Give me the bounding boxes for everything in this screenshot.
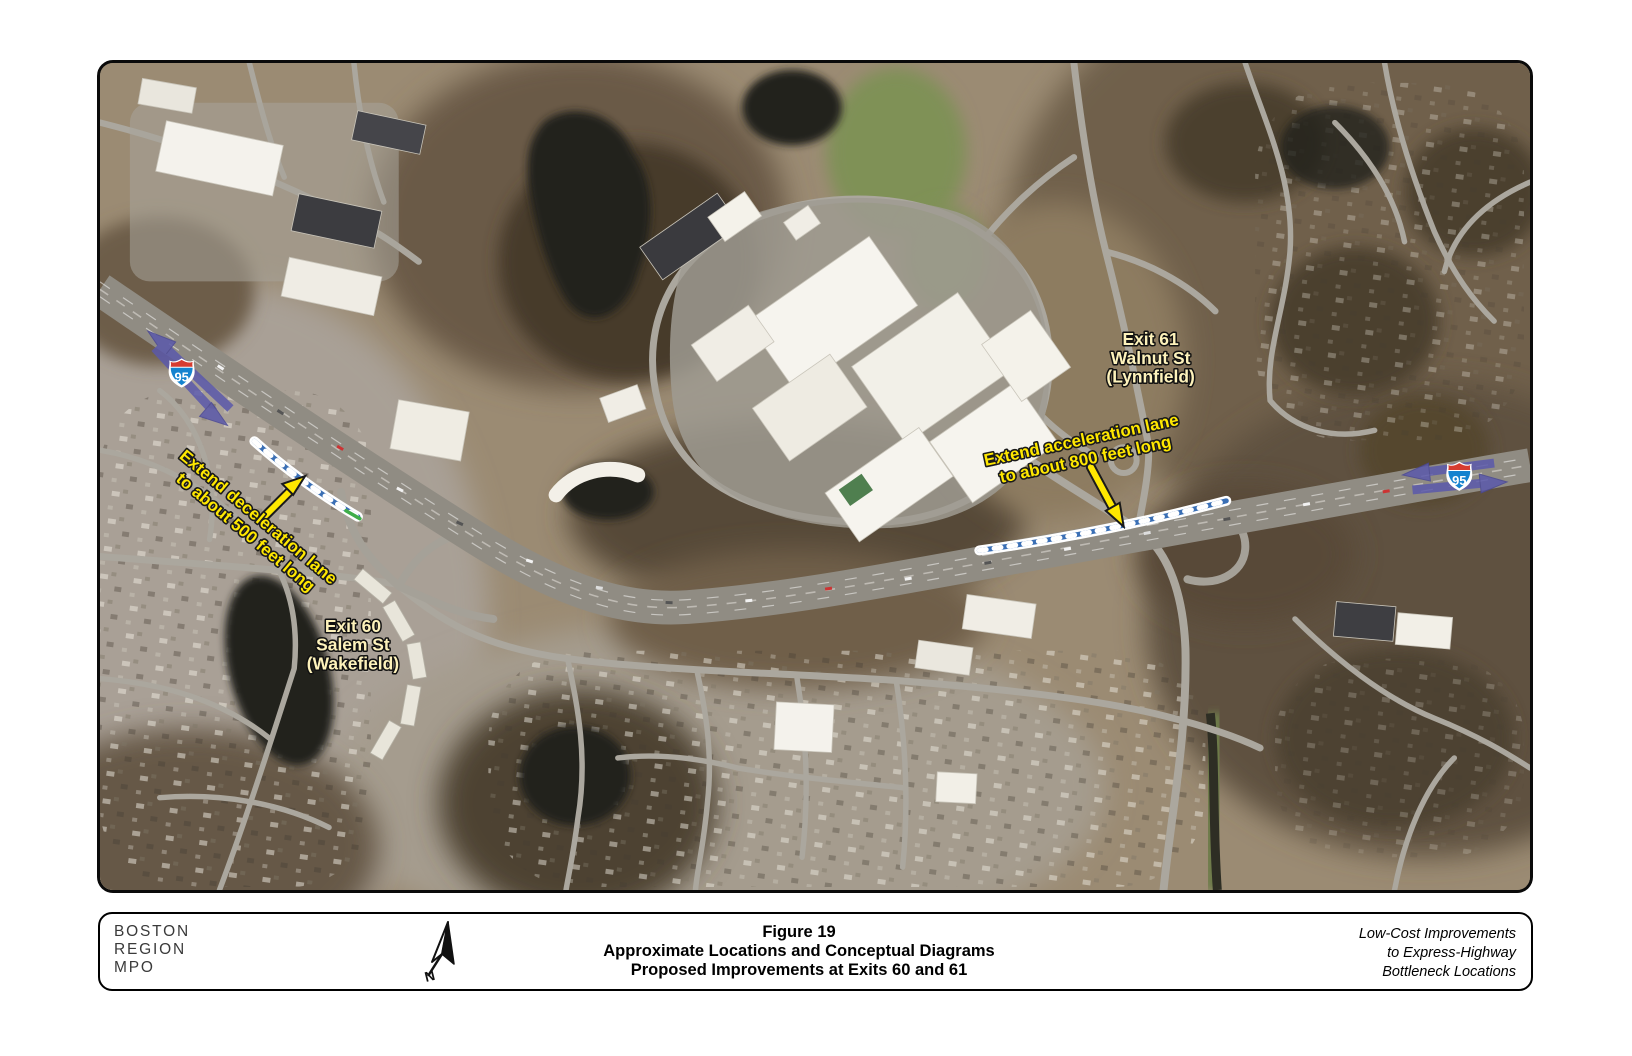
figure-title-line2: Approximate Locations and Conceptual Dia… — [603, 942, 995, 961]
project-line2: to Express-Highway — [1359, 944, 1516, 963]
agency-line1: BOSTON — [114, 923, 190, 941]
i95-number-left: 95 — [174, 370, 188, 385]
pond-bottom-center — [519, 726, 631, 825]
i95-number-right: 95 — [1452, 473, 1466, 488]
title-block: BOSTON REGION MPO N Figure 19 Approximat… — [98, 912, 1533, 991]
agency-line3: MPO — [114, 959, 190, 977]
aerial-map-panel: 95 95 Extend deceleration lane to about … — [97, 60, 1533, 893]
exit60-line2: Salem St — [316, 635, 390, 655]
agency-name: BOSTON REGION MPO — [114, 923, 190, 977]
aerial-map: 95 95 Extend deceleration lane to about … — [100, 63, 1530, 890]
north-letter: N — [423, 967, 437, 984]
project-line1: Low-Cost Improvements — [1359, 925, 1516, 944]
exit61-line1: Exit 61 — [1123, 329, 1179, 349]
agency-line2: REGION — [114, 941, 190, 959]
project-line3: Bottleneck Locations — [1359, 963, 1516, 982]
figure-title: Figure 19 Approximate Locations and Conc… — [603, 923, 995, 980]
project-name: Low-Cost Improvements to Express-Highway… — [1359, 925, 1516, 982]
exit60-line1: Exit 60 — [325, 616, 381, 636]
figure-title-line3: Proposed Improvements at Exits 60 and 61 — [603, 961, 995, 980]
pond-small-top — [742, 70, 842, 145]
pond-top-right — [1280, 106, 1390, 189]
figure-title-line1: Figure 19 — [603, 923, 995, 942]
exit61-line2: Walnut St — [1111, 348, 1191, 368]
river — [1210, 713, 1217, 890]
exit61-line3: (Lynnfield) — [1106, 367, 1194, 387]
exit60-line3: (Wakefield) — [307, 654, 399, 674]
north-arrow-icon: N — [418, 920, 464, 984]
